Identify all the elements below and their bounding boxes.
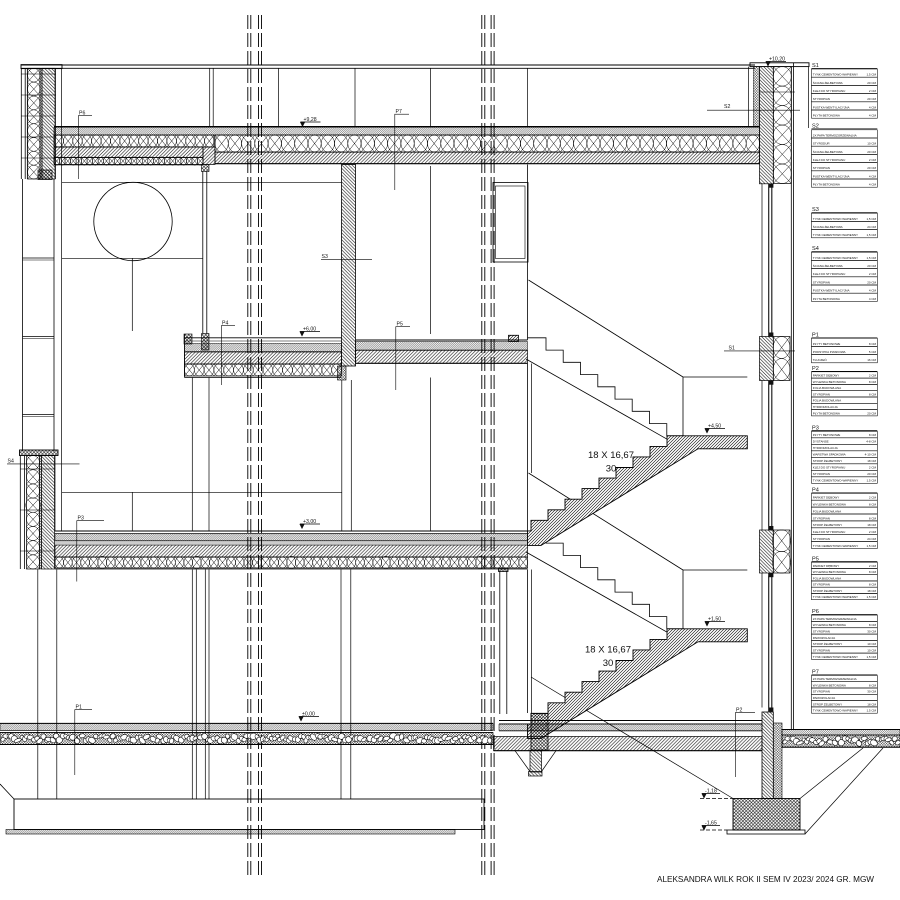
svg-text:-1,65: -1,65 xyxy=(705,820,717,826)
svg-text:STYROPIAN: STYROPIAN xyxy=(813,649,830,653)
svg-text:HYDROIZOLACJA: HYDROIZOLACJA xyxy=(813,405,839,409)
svg-text:PŁYTA BETONOWA: PŁYTA BETONOWA xyxy=(813,297,841,301)
svg-text:-1,18: -1,18 xyxy=(705,788,717,794)
svg-text:S3: S3 xyxy=(322,254,328,260)
svg-text:WYLEWKA BETONOWA: WYLEWKA BETONOWA xyxy=(813,623,847,627)
svg-text:24 CM: 24 CM xyxy=(867,537,876,541)
svg-text:FOLIA BUDOWLANA: FOLIA BUDOWLANA xyxy=(813,386,842,390)
svg-text:PŁYTY BETONOWE: PŁYTY BETONOWE xyxy=(813,342,840,346)
svg-text:+9,28: +9,28 xyxy=(304,117,317,123)
svg-text:±0,00: ±0,00 xyxy=(302,711,315,717)
svg-text:20 CM: 20 CM xyxy=(867,472,876,476)
svg-text:PŁYTA BETONOWA: PŁYTA BETONOWA xyxy=(813,114,841,118)
svg-text:18 CM: 18 CM xyxy=(867,459,876,463)
svg-text:4-8 CM: 4-8 CM xyxy=(866,440,876,444)
svg-text:18 CM: 18 CM xyxy=(867,523,876,527)
svg-text:TYNK CEMENTOWO WAPIENNY: TYNK CEMENTOWO WAPIENNY xyxy=(813,256,858,260)
svg-text:5 CM: 5 CM xyxy=(869,350,877,354)
svg-text:ŚCIANA ŻELBETOWA: ŚCIANA ŻELBETOWA xyxy=(813,224,844,229)
svg-text:18 X 16,67: 18 X 16,67 xyxy=(585,645,631,656)
svg-text:8 CM: 8 CM xyxy=(869,623,877,627)
svg-text:2 CM: 2 CM xyxy=(869,466,877,470)
svg-text:8 CM: 8 CM xyxy=(869,516,877,520)
svg-text:STYROPIAN: STYROPIAN xyxy=(813,630,830,634)
svg-text:+10,20: +10,20 xyxy=(769,56,785,62)
svg-text:STYROPIAN: STYROPIAN xyxy=(813,280,830,284)
svg-text:+4,50: +4,50 xyxy=(708,423,721,429)
svg-text:PŁYTA BETONOWA: PŁYTA BETONOWA xyxy=(813,411,841,415)
svg-text:+6,00: +6,00 xyxy=(303,326,316,332)
svg-text:STYROPIAN: STYROPIAN xyxy=(813,97,830,101)
svg-text:2 CM: 2 CM xyxy=(869,158,877,162)
svg-text:STYROPIAN: STYROPIAN xyxy=(813,583,830,587)
svg-text:PUSTKA WENTYLACYJNA: PUSTKA WENTYLACYJNA xyxy=(813,105,851,109)
svg-text:KLEJ DO STYROPIANU: KLEJ DO STYROPIANU xyxy=(813,158,845,162)
svg-text:18 X 16,67: 18 X 16,67 xyxy=(588,450,634,461)
svg-text:STROP ŻELBETOWY: STROP ŻELBETOWY xyxy=(813,588,842,593)
svg-text:10 CM: 10 CM xyxy=(867,642,876,646)
svg-text:20 CM: 20 CM xyxy=(867,166,876,170)
svg-text:8 CM: 8 CM xyxy=(869,392,877,396)
svg-text:8 CM: 8 CM xyxy=(869,570,877,574)
svg-text:+3,00: +3,00 xyxy=(303,519,316,525)
svg-text:PUSTKA WENTYLACYJNA: PUSTKA WENTYLACYJNA xyxy=(813,174,851,178)
svg-text:WYLEWKA BETONOWA: WYLEWKA BETONOWA xyxy=(813,683,847,687)
svg-text:4 CM: 4 CM xyxy=(869,297,877,301)
svg-text:1,5 CM: 1,5 CM xyxy=(866,709,876,713)
svg-text:2X PAPA TERMOZGRZEWALNA: 2X PAPA TERMOZGRZEWALNA xyxy=(813,677,858,681)
svg-text:+1,50: +1,50 xyxy=(708,616,721,622)
svg-text:PAROIZOLACJA: PAROIZOLACJA xyxy=(813,696,836,700)
svg-text:10 CM: 10 CM xyxy=(867,649,876,653)
svg-text:TYNK CEMENTOWO WAPIENNY: TYNK CEMENTOWO WAPIENNY xyxy=(813,709,858,713)
svg-text:1,5 CM: 1,5 CM xyxy=(866,479,876,483)
svg-text:STROP ŻELBETOWY: STROP ŻELBETOWY xyxy=(813,522,842,527)
svg-text:8 CM: 8 CM xyxy=(869,503,877,507)
svg-text:WARSTWA SPADKOWA: WARSTWA SPADKOWA xyxy=(813,453,847,457)
svg-text:STYROPIAN: STYROPIAN xyxy=(813,472,830,476)
svg-text:1,5 CM: 1,5 CM xyxy=(866,256,876,260)
svg-text:4 CM: 4 CM xyxy=(869,174,877,178)
svg-text:PŁYTA BETONOWA: PŁYTA BETONOWA xyxy=(813,183,841,187)
svg-text:8 CM: 8 CM xyxy=(869,683,877,687)
svg-text:ALEKSANDRA WILK ROK II SEM IV: ALEKSANDRA WILK ROK II SEM IV 2023/ 2024… xyxy=(657,875,874,884)
svg-text:2 CM: 2 CM xyxy=(869,374,877,378)
svg-text:PARKIET DĘBOWY: PARKIET DĘBOWY xyxy=(813,564,839,568)
svg-text:PŁYTY BETONOWE: PŁYTY BETONOWE xyxy=(813,433,840,437)
svg-text:24 CM: 24 CM xyxy=(867,225,876,229)
svg-text:TYNK CEMENTOWO-WAPIENNY: TYNK CEMENTOWO-WAPIENNY xyxy=(813,544,858,548)
svg-text:30 CM: 30 CM xyxy=(867,690,876,694)
svg-text:20 CM: 20 CM xyxy=(867,264,876,268)
svg-text:20 CM: 20 CM xyxy=(867,97,876,101)
svg-text:KLEJ DO STYROPIANU: KLEJ DO STYROPIANU xyxy=(813,89,845,93)
svg-text:1,5 CM: 1,5 CM xyxy=(866,544,876,548)
svg-text:ŚCIANA ŻELBETOWA: ŚCIANA ŻELBETOWA xyxy=(813,263,844,268)
svg-text:TYNK CEMENTOWO WAPIENNY: TYNK CEMENTOWO WAPIENNY xyxy=(813,217,858,221)
svg-text:30: 30 xyxy=(603,658,614,669)
svg-text:1,5 CM: 1,5 CM xyxy=(866,595,876,599)
svg-text:WYLEWKA BETONOWA: WYLEWKA BETONOWA xyxy=(813,503,847,507)
svg-text:4-10 CM: 4-10 CM xyxy=(865,453,877,457)
svg-text:PAROIZOLACJA: PAROIZOLACJA xyxy=(813,636,836,640)
svg-text:PARKIET DĘBOWY: PARKIET DĘBOWY xyxy=(813,374,839,378)
svg-text:18 CM: 18 CM xyxy=(867,589,876,593)
svg-text:PARKIET DĘBOWY: PARKIET DĘBOWY xyxy=(813,496,839,500)
svg-text:STYROPIAN: STYROPIAN xyxy=(813,516,830,520)
svg-text:2X PAPA TERMOZGRZEWALNA: 2X PAPA TERMOZGRZEWALNA xyxy=(813,133,858,137)
svg-text:STROP ŻELBETOWY: STROP ŻELBETOWY xyxy=(813,641,842,646)
svg-text:TYNK CEMENTOWO-WAPIENNY: TYNK CEMENTOWO-WAPIENNY xyxy=(813,479,858,483)
svg-text:20 CM: 20 CM xyxy=(867,81,876,85)
svg-text:2 CM: 2 CM xyxy=(869,272,877,276)
svg-text:18 CM: 18 CM xyxy=(867,702,876,706)
svg-text:TŁUCZEŃ: TŁUCZEŃ xyxy=(813,358,827,362)
svg-text:TYNK CEMENTOWO WAPIENNY: TYNK CEMENTOWO WAPIENNY xyxy=(813,73,858,77)
svg-text:FOLIA BUDOWLANA: FOLIA BUDOWLANA xyxy=(813,576,842,580)
svg-text:PODSYPKA PIASKOWA: PODSYPKA PIASKOWA xyxy=(813,350,847,354)
svg-text:20 CM: 20 CM xyxy=(867,411,876,415)
svg-text:10 CM: 10 CM xyxy=(867,142,876,146)
svg-text:KLEJ DO STYROPIANU: KLEJ DO STYROPIANU xyxy=(813,466,845,470)
svg-text:TYNK CEMENTOWO WAPIENNY: TYNK CEMENTOWO WAPIENNY xyxy=(813,655,858,659)
svg-text:DYSTANSE: DYSTANSE xyxy=(813,440,829,444)
svg-text:STYROPIAN: STYROPIAN xyxy=(813,166,830,170)
svg-text:KLEJ DO STYROPIANU: KLEJ DO STYROPIANU xyxy=(813,530,845,534)
svg-text:WYLEWKA BETONOWA: WYLEWKA BETONOWA xyxy=(813,380,847,384)
svg-text:8 CM: 8 CM xyxy=(869,583,877,587)
svg-text:2X PAPA TERMOZGRZEWALNA: 2X PAPA TERMOZGRZEWALNA xyxy=(813,617,858,621)
svg-text:S2: S2 xyxy=(724,104,730,110)
svg-text:1,5 CM: 1,5 CM xyxy=(866,655,876,659)
svg-text:TYNK CEMENTOWO WAPIENNY: TYNK CEMENTOWO WAPIENNY xyxy=(813,233,858,237)
svg-text:STYROPIAN: STYROPIAN xyxy=(813,690,830,694)
svg-text:2 CM: 2 CM xyxy=(869,496,877,500)
svg-text:ŚCIANA ŻELBETOWA: ŚCIANA ŻELBETOWA xyxy=(813,149,844,154)
svg-text:4 CM: 4 CM xyxy=(869,183,877,187)
svg-text:FOLIA BUDOWLANA: FOLIA BUDOWLANA xyxy=(813,509,842,513)
svg-text:20 CM: 20 CM xyxy=(867,150,876,154)
svg-text:ŚCIANA ŻELBETOWA: ŚCIANA ŻELBETOWA xyxy=(813,80,844,85)
svg-text:4 CM: 4 CM xyxy=(869,105,877,109)
svg-text:2 CM: 2 CM xyxy=(869,530,877,534)
svg-text:STROP ŻELBETOWY: STROP ŻELBETOWY xyxy=(813,701,842,706)
svg-text:8 CM: 8 CM xyxy=(869,342,877,346)
svg-text:4 CM: 4 CM xyxy=(869,114,877,118)
svg-text:2 CM: 2 CM xyxy=(869,89,877,93)
svg-text:1,5 CM: 1,5 CM xyxy=(866,73,876,77)
svg-text:WYLEWKA BETONOWA: WYLEWKA BETONOWA xyxy=(813,570,847,574)
svg-text:KLEJ DO STYROPIANU: KLEJ DO STYROPIANU xyxy=(813,272,845,276)
svg-text:30 CM: 30 CM xyxy=(867,630,876,634)
svg-text:FOLIA BUDOWLANA: FOLIA BUDOWLANA xyxy=(813,399,842,403)
svg-text:TYNK CEMENTOWO WAPIENNY: TYNK CEMENTOWO WAPIENNY xyxy=(813,595,858,599)
svg-text:1,5 CM: 1,5 CM xyxy=(866,217,876,221)
svg-text:16 CM: 16 CM xyxy=(867,358,876,362)
svg-text:STYROPIAN: STYROPIAN xyxy=(813,392,830,396)
svg-text:30: 30 xyxy=(606,464,617,475)
svg-text:2 CM: 2 CM xyxy=(869,564,877,568)
svg-text:4 CM: 4 CM xyxy=(869,289,877,293)
svg-text:8 CM: 8 CM xyxy=(869,380,877,384)
svg-text:STYRODUR: STYRODUR xyxy=(813,142,831,146)
svg-text:20 CM: 20 CM xyxy=(867,280,876,284)
svg-text:STROP ŻELBETOWY: STROP ŻELBETOWY xyxy=(813,458,842,463)
svg-text:8 CM: 8 CM xyxy=(869,433,877,437)
svg-text:HYDROIZOLACJA: HYDROIZOLACJA xyxy=(813,446,839,450)
svg-text:PUSTKA WENTYLACYJNA: PUSTKA WENTYLACYJNA xyxy=(813,289,851,293)
svg-text:1,5 CM: 1,5 CM xyxy=(866,233,876,237)
svg-text:STYROPIAN: STYROPIAN xyxy=(813,537,830,541)
